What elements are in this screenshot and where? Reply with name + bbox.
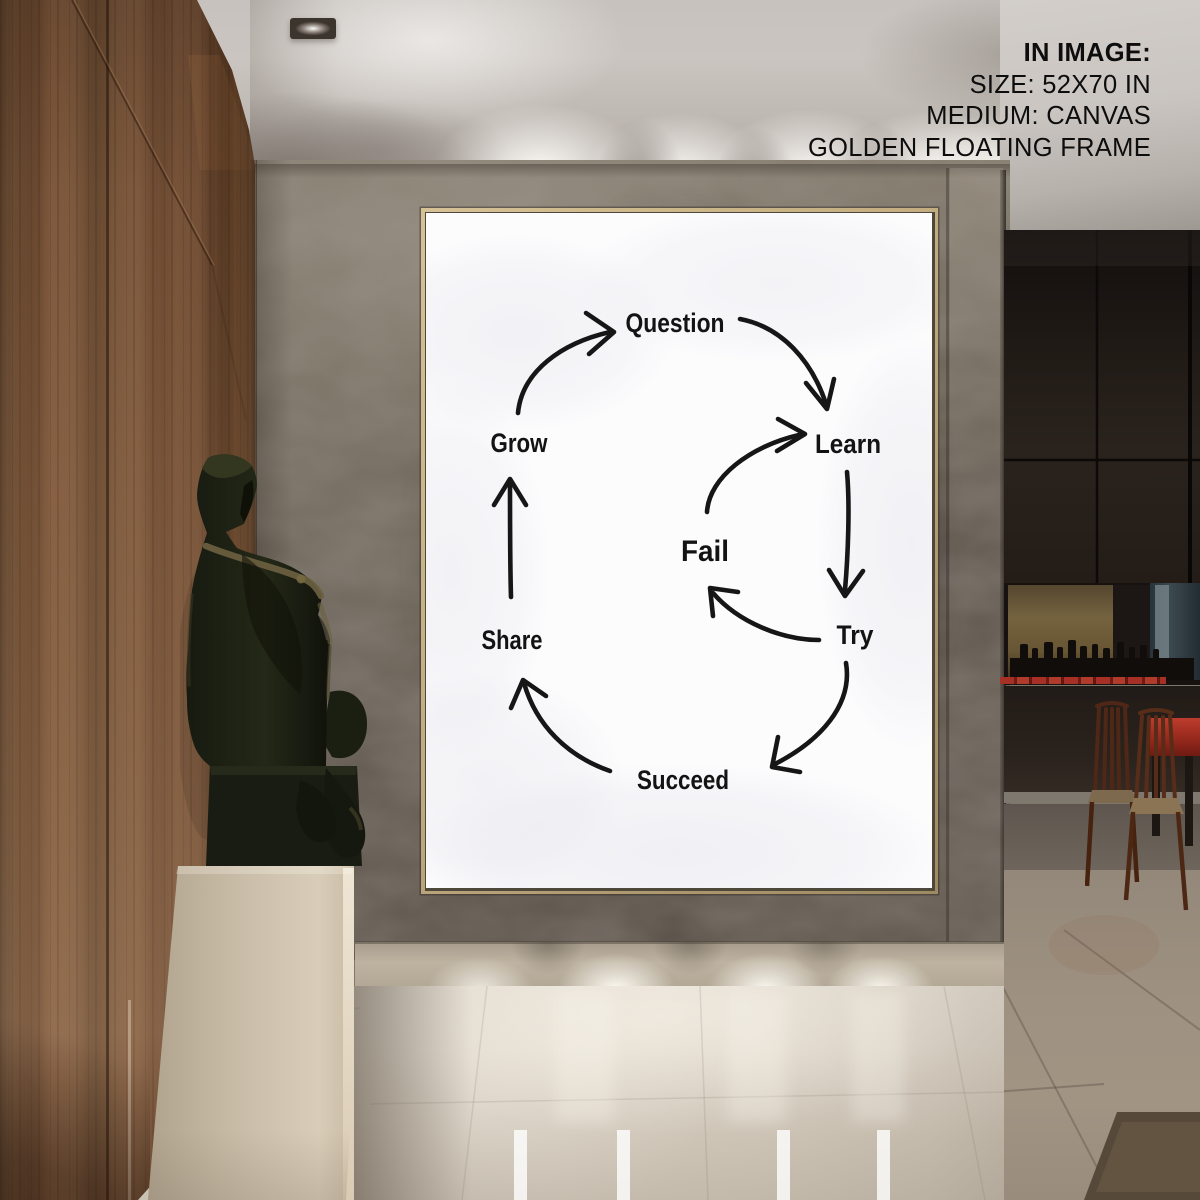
svg-text:Question: Question — [626, 308, 725, 338]
svg-text:Learn: Learn — [815, 429, 881, 459]
svg-text:Share: Share — [482, 625, 543, 655]
svg-text:Grow: Grow — [491, 428, 549, 458]
svg-text:Try: Try — [837, 620, 874, 650]
svg-text:Succeed: Succeed — [637, 765, 729, 795]
svg-text:Fail: Fail — [681, 535, 729, 568]
